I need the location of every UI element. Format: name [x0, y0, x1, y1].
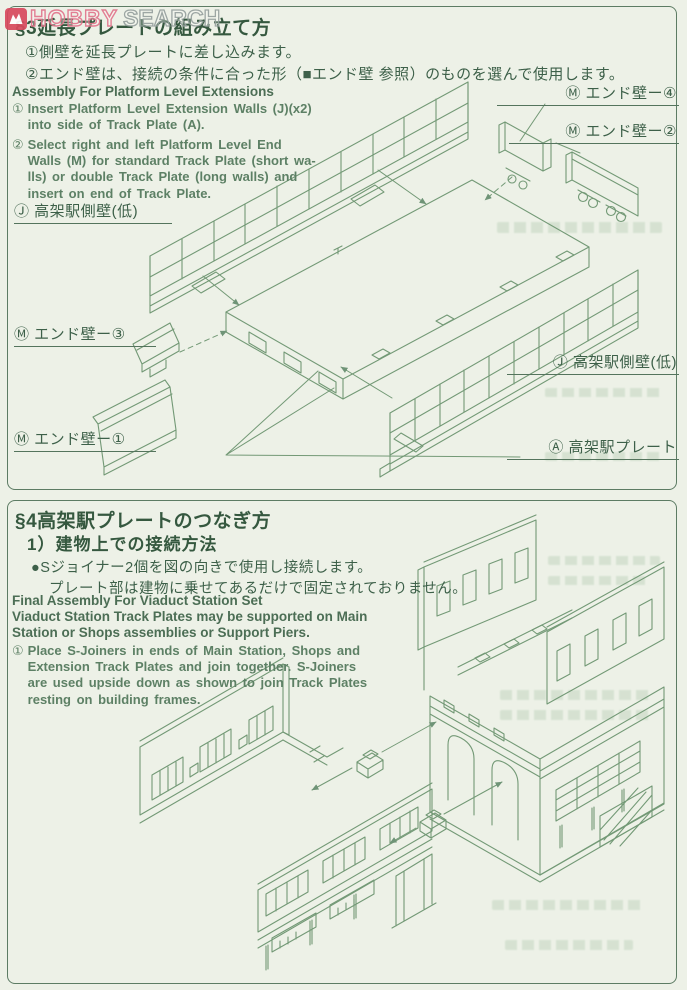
diagram2-s-joiner-2 [420, 810, 446, 838]
label-end-wall-4: Ⓜ エンド壁ー④ [497, 82, 679, 106]
section4-en-sub-1: Viaduct Station Track Plates may be supp… [12, 609, 367, 624]
step-number: ① [12, 101, 24, 133]
step-number: ② [12, 137, 24, 202]
diagram1-arrows [180, 170, 512, 398]
section4-bullet: ●Sジョイナー2個を図の向きで使用し接続します。 [31, 556, 372, 577]
section4-en-sub-2: Station or Shops assemblies or Support P… [12, 625, 310, 640]
label-end-wall-1: Ⓜ エンド壁ー① [14, 428, 156, 452]
section4-en-step-1: ① Place S-Joiners in ends of Main Statio… [12, 643, 367, 708]
section3-ja-step-1: ①側壁を延長プレートに差し込みます。 [25, 41, 301, 62]
label-track-plate: Ⓐ 高架駅プレート [507, 436, 679, 460]
section4-title: §4高架駅プレートのつなぎ方 [15, 506, 271, 533]
en-text-line: are used upside down as shown to join Tr… [28, 675, 367, 691]
en-text-line: lls) or double Track Plate (long walls) … [28, 169, 316, 185]
section3-en-step-2: ② Select right and left Platform Level E… [12, 137, 316, 202]
diagram2-shops-building [258, 783, 436, 970]
en-text-line: Select right and left Platform Level End [28, 137, 316, 153]
hobbysearch-flame-icon [5, 8, 27, 30]
brand-search-text: SEARCH [123, 5, 220, 32]
en-text-line: Place S-Joiners in ends of Main Station,… [28, 643, 367, 659]
section3-en-step-1: ① Insert Platform Level Extension Walls … [12, 101, 312, 133]
diagram1-end-wall-2 [566, 152, 638, 222]
label-end-wall-2: Ⓜ エンド壁ー② [509, 120, 679, 144]
section3-ja-step-2: ②エンド壁は、接続の条件に合った形（■エンド壁 参照）のものを選んで使用します。 [25, 63, 624, 84]
label-side-wall-left: Ⓙ 高架駅側壁(低) [14, 200, 172, 224]
diagram2-s-joiner-1 [357, 750, 383, 778]
en-text-line: resting on building frames. [28, 692, 367, 708]
en-text-line: Insert Platform Level Extension Walls (J… [28, 101, 312, 117]
label-side-wall-right: Ⓙ 高架駅側壁(低) [507, 351, 679, 375]
step-number: ① [12, 643, 24, 708]
section4-en-heading: Final Assembly For Viaduct Station Set [12, 593, 263, 608]
diagram2-main-station-building [418, 515, 664, 882]
brand-hobby-text: HOBBY [30, 5, 118, 32]
en-text-line: Extension Track Plates and join together… [28, 659, 367, 675]
hobbysearch-watermark: HOBBY SEARCH [5, 5, 220, 32]
section4-subtitle: 1）建物上での接続方法 [27, 530, 217, 555]
label-end-wall-3: Ⓜ エンド壁ー③ [14, 323, 156, 347]
en-text-line: into side of Track Plate (A). [28, 117, 312, 133]
en-text-line: Walls (M) for standard Track Plate (shor… [28, 153, 316, 169]
section3-en-heading: Assembly For Platform Level Extensions [12, 84, 274, 99]
